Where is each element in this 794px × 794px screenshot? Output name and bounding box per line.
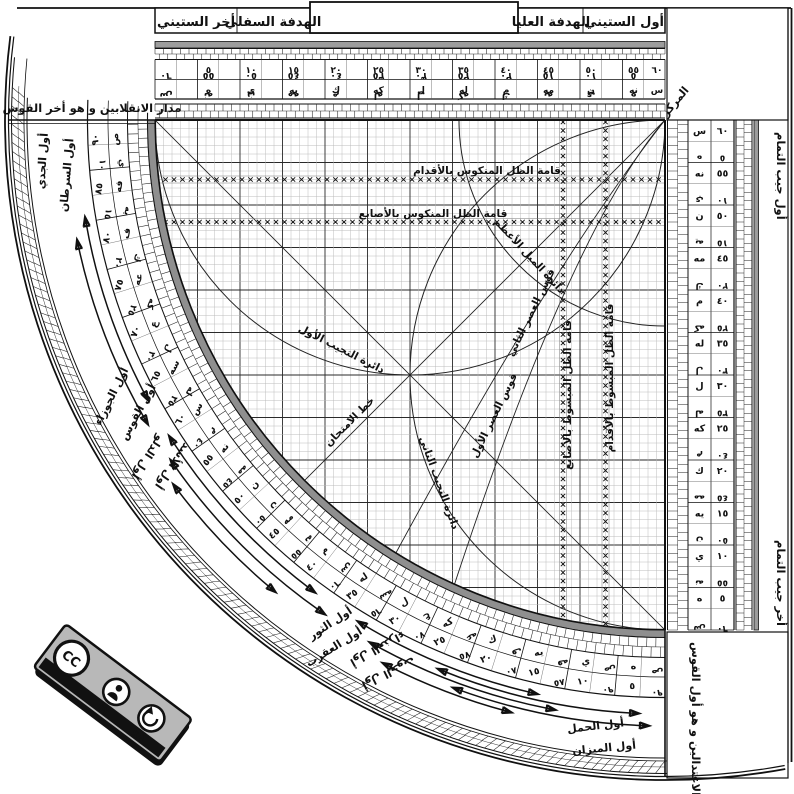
top-scale-numeral-reversed: ٤٠ — [501, 66, 512, 76]
top-scale-numeral-reversed: ٤٥ — [543, 66, 554, 76]
equinox-orbit-label: مدار الاعتدالين و هو أول القوس — [688, 642, 704, 794]
curve-label-tajyib-thani: دائرة التجيب الثاني — [416, 435, 461, 532]
right-scale-abjad: ل — [695, 381, 703, 392]
arc-abjad-label: م — [318, 544, 330, 557]
right-scale-abjad: كه — [694, 424, 706, 435]
right-scale-abjad: نه — [695, 169, 704, 180]
arc-abjad-label-reversed: يه — [121, 206, 132, 216]
arc-abjad-label: ص — [110, 132, 121, 145]
top-scale-abjad-reversed: م — [503, 86, 510, 96]
arc-abjad-label-reversed: س — [338, 561, 354, 576]
arc-abjad-label: ه — [630, 661, 637, 672]
arc-degree-label: ٢٥ — [432, 634, 447, 649]
right-scale-abjad-reversed: يه — [695, 238, 704, 248]
right-scale-numeral: ٢٠ — [717, 466, 729, 477]
zodiac-band: أول الجديأول السرطانأول الجوزاءأول القوس… — [24, 59, 776, 761]
right-scale-numeral: ٣٥ — [717, 339, 729, 350]
top-scale-abjad: س — [159, 90, 172, 101]
arc-degree-label: ٢٠ — [479, 652, 493, 666]
right-scale-numeral-reversed: ٥ — [720, 153, 726, 163]
top-scale-numeral-reversed: ٦٠ — [652, 66, 663, 76]
arc-degree-label-reversed: ١٥ — [101, 208, 113, 220]
grid-curve-labels: قامة الظل المنكوس بالأقدامقامة الظل المن… — [296, 164, 616, 532]
arc-abjad-label-reversed: ص — [651, 667, 663, 677]
arc-abjad-label-reversed: فه — [556, 656, 569, 668]
top-scale-abjad-reversed: مه — [543, 86, 554, 96]
zodiac-label: أول الجوزاء — [91, 365, 131, 427]
top-scale-abjad-reversed: ن — [587, 86, 595, 96]
top-scale-abjad-reversed: يه — [289, 86, 298, 96]
right-scale-numeral: ٣٠ — [717, 381, 729, 392]
arc-degree-label-reversed: ٣٥ — [165, 393, 179, 407]
arc-abjad-label: نه — [217, 441, 231, 455]
curve-label-mankus-asabi: قامة الظل المنكوس بالأصابع — [359, 207, 508, 220]
arc-abjad-label: ل — [398, 596, 410, 610]
top-scale-numeral-reversed: ١٥ — [288, 66, 299, 76]
right-scale-abjad: مه — [694, 254, 706, 265]
top-scale-abjad-reversed: كه — [373, 86, 384, 96]
arc-degree-label: ٤٥ — [266, 526, 282, 542]
right-scale-numeral-reversed: ٤٠ — [717, 450, 728, 460]
right-scale-numeral-reversed: ٥٥ — [717, 578, 728, 588]
cosine-end-label: أخر جيب التمام — [774, 540, 789, 626]
top-scale-numeral-reversed: ٣٠ — [416, 66, 427, 76]
arc-abjad-label: ن — [248, 479, 262, 492]
curve-label-mabsut-aqdam: قامة الظل المبسوط بالأقدام — [603, 303, 616, 452]
arc-abjad-label-reversed: ي — [116, 159, 127, 168]
right-scale-abjad-reversed: ن — [695, 535, 703, 545]
top-scale-abjad-reversed: ي — [247, 86, 255, 96]
arc-degree-label: ٧٥ — [113, 278, 127, 292]
right-scale-numeral-reversed: ٢٥ — [717, 323, 728, 333]
right-scale-numeral-reversed: ٣٥ — [717, 408, 728, 418]
right-scale-numeral: ٥٠ — [717, 211, 729, 222]
arc-degree-label-reversed: ٩٠ — [602, 684, 614, 695]
right-scale-numeral-reversed: ٣٠ — [717, 365, 728, 375]
zodiac-label: أول القوس — [116, 382, 158, 443]
right-scale-numeral: ٥٥ — [717, 169, 729, 180]
arc-abjad-label-reversed: ن — [268, 500, 281, 513]
top-scale-numeral-reversed: ٥٠ — [586, 66, 597, 76]
right-scale-numeral-reversed: ٤٥ — [717, 493, 728, 503]
right-scale-numeral: ٤٥ — [717, 254, 729, 265]
arc-abjad-label-reversed: ص — [603, 664, 616, 675]
header-hadafa-sufla: الهدفة السفلي — [225, 15, 322, 30]
arc-degree-label: ٤٠ — [304, 558, 320, 574]
arc-degree-label-reversed: ٢٥ — [125, 303, 138, 317]
arc-degree-label-reversed: ٤٥ — [220, 475, 235, 490]
right-scale-abjad-reversed: كه — [693, 323, 704, 333]
curve-label-mabsut-asabi: قامة الظل المبسوط بالأصابع — [561, 320, 574, 470]
arc-abjad-label: عه — [132, 272, 146, 287]
cosine-start-label: أول جيب التمام — [773, 132, 789, 220]
top-scale-abjad-reversed: س — [651, 86, 663, 96]
header-hadafa-ulya: الهدفة العليا — [512, 15, 591, 30]
arc-degree-label: ٣٥ — [344, 587, 360, 603]
right-scale-abjad: ن — [695, 211, 703, 222]
top-scale-abjad-reversed: ه — [206, 86, 211, 96]
arc-abjad-label-reversed: سه — [377, 587, 395, 603]
top-scale-abjad-reversed: ل — [417, 86, 425, 96]
right-scale-numeral: ١٠ — [717, 551, 729, 562]
arc-abjad-label-reversed: له — [183, 385, 196, 398]
arc-abjad-label-reversed: ك — [131, 252, 143, 262]
right-scale-abjad-reversed: م — [696, 450, 703, 460]
header-akhir-sittini: أخر الستيني — [157, 13, 235, 30]
arc-degree-label: ٨٠ — [101, 231, 114, 245]
arc-degree-label-reversed: ٨٥ — [553, 676, 566, 688]
right-scale-numeral: ٥ — [720, 594, 726, 605]
solstice-orbit-label: مدار الانقلابين و هو أخر القوس — [3, 100, 182, 116]
arc-abjad-label-reversed: م — [208, 426, 220, 437]
top-scale-numeral-reversed: ٥ — [206, 66, 212, 76]
right-scale-abjad-reversed: ي — [695, 195, 703, 205]
right-scale-numeral-reversed: ١٥ — [717, 238, 728, 248]
arc-degree-label: ٨٥ — [93, 182, 105, 195]
arc-degree-label-reversed: ٥٠ — [253, 512, 268, 527]
right-scale-abjad-reversed: نه — [695, 578, 704, 588]
top-scale-numeral-reversed: ١٠ — [246, 66, 257, 76]
curve-label-mankus-aqdam: قامة الظل المنكوس بالأقدام — [413, 164, 561, 177]
arc-degree-label: ١٠ — [576, 675, 589, 688]
arc-abjad-label: س — [189, 401, 205, 418]
arc-abjad-label-reversed: مه — [235, 463, 250, 478]
arc-degree-label: ٩٠ — [90, 134, 101, 146]
arc-abjad-label: له — [356, 571, 370, 585]
right-scale-numeral: ٤٠ — [717, 296, 729, 307]
right-scale-numeral: ٦٠ — [717, 126, 729, 137]
built-drawing: ص٩٠فه٨٥ي١٠ف٨٠يه١٥عه٧٥ك٢٠ع٧٠كه٢٥سه٦٥ل٣٠س٦… — [5, 2, 791, 780]
arc-degree-label-reversed: ٢٠ — [111, 256, 123, 269]
arc-abjad-label: كه — [440, 616, 455, 631]
top-scale-numeral-reversed: ٢٥ — [373, 66, 384, 76]
right-scale-numeral: ١٥ — [717, 509, 729, 520]
right-scale-abjad-reversed: له — [695, 408, 704, 418]
zodiac-label: أول الجدي — [33, 133, 50, 190]
degree-arc-scale: ص٩٠فه٨٥ي١٠ف٨٠يه١٥عه٧٥ك٢٠ع٧٠كه٢٥سه٦٥ل٣٠س٦… — [87, 100, 665, 698]
top-scale-abjad-reversed: له — [459, 86, 468, 96]
header-awwal-sittini: أول الستيني — [584, 13, 664, 30]
right-scale-numeral-reversed: ٥٠ — [717, 535, 728, 545]
top-scale-abjad-reversed: نه — [629, 86, 638, 96]
arc-abjad-label: ك — [487, 633, 499, 646]
arc-abjad-label: سه — [166, 358, 183, 376]
right-scale-abjad: يه — [695, 509, 704, 520]
zodiac-label: أول الميزان — [572, 738, 637, 758]
right-scale-abjad: س — [693, 126, 706, 137]
top-scale-abjad-reversed: ك — [332, 86, 340, 96]
right-scale-abjad: ي — [695, 551, 704, 562]
right-scale-abjad-reversed: ك — [695, 280, 703, 290]
arc-abjad-label: ف — [120, 227, 133, 240]
sine-quadrant-plate: ص٩٠فه٨٥ي١٠ف٨٠يه١٥عه٧٥ك٢٠ع٧٠كه٢٥سه٦٥ل٣٠س٦… — [0, 0, 794, 794]
arc-abjad-label-reversed: ل — [162, 342, 174, 353]
arc-abjad-label: يه — [533, 646, 545, 659]
right-scale-numeral-reversed: ٢٠ — [717, 280, 728, 290]
right-scale-numeral-reversed: ١٠ — [717, 195, 728, 205]
cc-badge: CCBYSA — [30, 624, 194, 768]
right-scale-abjad: ه — [697, 594, 703, 605]
top-scale-numeral: ٦٠ — [160, 70, 172, 81]
right-scale-abjad-reversed: ل — [696, 365, 704, 375]
zodiac-label: أول السرطان — [56, 138, 76, 213]
right-scale: س٦٠نه٥٥ه٥ن٥٠ي١٠مه٤٥يه١٥م٤٠ك٢٠له٣٥كه٢٥ل٣٠… — [668, 120, 759, 633]
top-scale: ٦٠س٥٥نه٥ه٥٠ن١٠ي٤٥مه١٥يه٤٠م٢٠ك٣٥له٢٥كه٣٠ل… — [155, 42, 665, 119]
arc-abjad-label: فه — [113, 180, 125, 193]
right-scale-abjad: ك — [695, 466, 704, 477]
top-scale-numeral-reversed: ٢٠ — [331, 66, 342, 76]
right-scale-abjad: له — [695, 339, 704, 350]
arc-abjad-label-reversed: نه — [302, 532, 315, 545]
top-scale-numeral-reversed: ٣٥ — [458, 66, 469, 76]
right-scale-abjad-reversed: ه — [697, 153, 702, 163]
right-scale-abjad: م — [696, 296, 703, 307]
curve-label-imtihan: خط الامتحان — [323, 395, 378, 450]
arc-degree-label-reversed: ٥٥ — [288, 546, 303, 561]
arc-abjad-label: ع — [148, 319, 161, 330]
sine-quadrant-screenshot: ص٩٠فه٨٥ي١٠ف٨٠يه١٥عه٧٥ك٢٠ع٧٠كه٢٥سه٦٥ل٣٠س٦… — [0, 0, 794, 794]
zodiac-label: أول الحمل — [566, 715, 624, 735]
arc-degree-label-reversed: ١٠ — [96, 159, 107, 171]
arc-abjad-label: ي — [581, 656, 591, 668]
arc-degree-label-reversed: ٣٠ — [143, 349, 157, 363]
arc-degree-label: ١٥ — [527, 666, 541, 679]
top-scale-numeral-reversed: ٥٥ — [628, 66, 639, 76]
arc-abjad-label-reversed: عه — [464, 629, 478, 642]
right-scale-numeral: ٢٥ — [717, 424, 729, 435]
arc-degree-label-reversed: ٩٠ — [652, 687, 663, 697]
right-scale-abjad-reversed: مه — [694, 493, 705, 503]
arc-degree-label: ٣٠ — [387, 612, 402, 627]
arc-degree-label: ٥ — [629, 681, 636, 692]
